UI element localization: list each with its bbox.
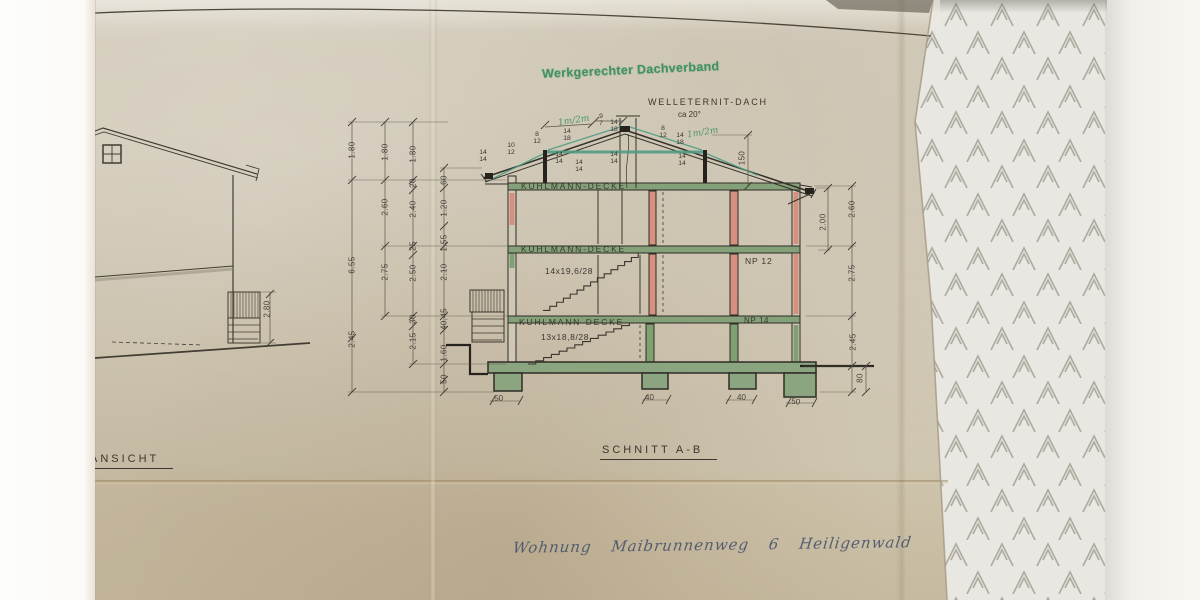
truss-member-size: 812 [533, 132, 541, 146]
dim-label: 2.75 [381, 263, 390, 280]
ceiling-label-ground: KUHLMANN-DECKE [519, 317, 624, 327]
dim-label: 2.75 [848, 264, 857, 281]
dim-label: 2.50 [409, 264, 418, 281]
ceiling-label-upper: KUHLMANN-DECKE [521, 244, 626, 254]
dim-label: ,50 [492, 394, 503, 403]
truss-member-size: 1418 [676, 133, 684, 147]
dim-label: 1.60 [440, 344, 449, 361]
drawing-paper [95, 0, 953, 600]
stair-spec-upper: 14x19,6/28 [545, 266, 593, 276]
paper-mottling [95, 0, 953, 600]
dim-label: 1.20 [440, 199, 449, 216]
dim-label: 1.80 [348, 141, 357, 158]
mattress-border-band [1105, 0, 1200, 600]
dim-label: 2.15 [409, 332, 418, 349]
truss-member-size: 812 [659, 126, 667, 140]
dim-label-elevation: 2.80 [263, 300, 272, 317]
right-fold-crease [896, 0, 906, 600]
dim-label: 25 [409, 241, 418, 251]
truss-member-size: 1414 [610, 152, 618, 166]
dim-label: 2.00 [819, 213, 828, 230]
beam-label-np12: NP 12 [745, 256, 772, 266]
truss-member-size: 1414 [678, 154, 686, 168]
dim-label: 40 [645, 393, 654, 402]
dim-label: 2.45 [849, 333, 858, 350]
paper-top-fold-light [95, 0, 940, 30]
dim-label: 80 [856, 373, 865, 383]
truss-member-size: 1414 [555, 152, 563, 166]
truss-member-size: 97 [599, 114, 603, 128]
dim-label: 150 [738, 151, 747, 166]
truss-member-size: 1418 [563, 129, 571, 143]
elevation-title: ANSICHT [88, 453, 173, 469]
dim-label: 20 [409, 178, 418, 188]
left-white-margin [0, 0, 95, 600]
vertical-fold-crease [429, 0, 437, 600]
dim-label: 2.60 [381, 198, 390, 215]
truss-member-size: 1414 [575, 160, 583, 174]
dim-label: 2.40 [409, 200, 418, 217]
truss-member-size: 1414 [479, 150, 487, 164]
section-title: SCHNITT A-B [600, 444, 717, 460]
dim-label: 2.10 [440, 263, 449, 280]
roof-slope-label: ca 20° [678, 110, 701, 119]
dim-label: 60 [440, 175, 449, 185]
dim-label: 30 [409, 314, 418, 324]
truss-member-size: 1418 [610, 120, 618, 134]
stair-spec-lower: 13x18,8/28 [541, 332, 589, 342]
dim-label: 40 [737, 393, 746, 402]
dim-label: 6.55 [348, 256, 357, 273]
dim-label: 1.80 [381, 143, 390, 160]
dim-label: ,50 [788, 396, 800, 406]
dim-label: 2.45 [348, 330, 357, 347]
beam-label-np14: NP 14 [744, 316, 769, 325]
roof-material-label: WELLETERNIT-DACH [648, 97, 768, 107]
horizontal-fold-crease [95, 480, 948, 484]
truss-member-size: 1012 [507, 143, 515, 157]
ceiling-label-attic: KUHLMANN-DECKE [521, 181, 626, 191]
dim-label: 2.60 [848, 200, 857, 217]
dim-label: 50 [440, 374, 449, 384]
blueprint-photo: Werkgerechter Dachverband WELLETERNIT-DA… [0, 0, 1200, 600]
dim-label: 1.80 [409, 145, 418, 162]
dim-label: 40,45 [440, 308, 449, 330]
dim-label: 1.55 [440, 234, 449, 251]
